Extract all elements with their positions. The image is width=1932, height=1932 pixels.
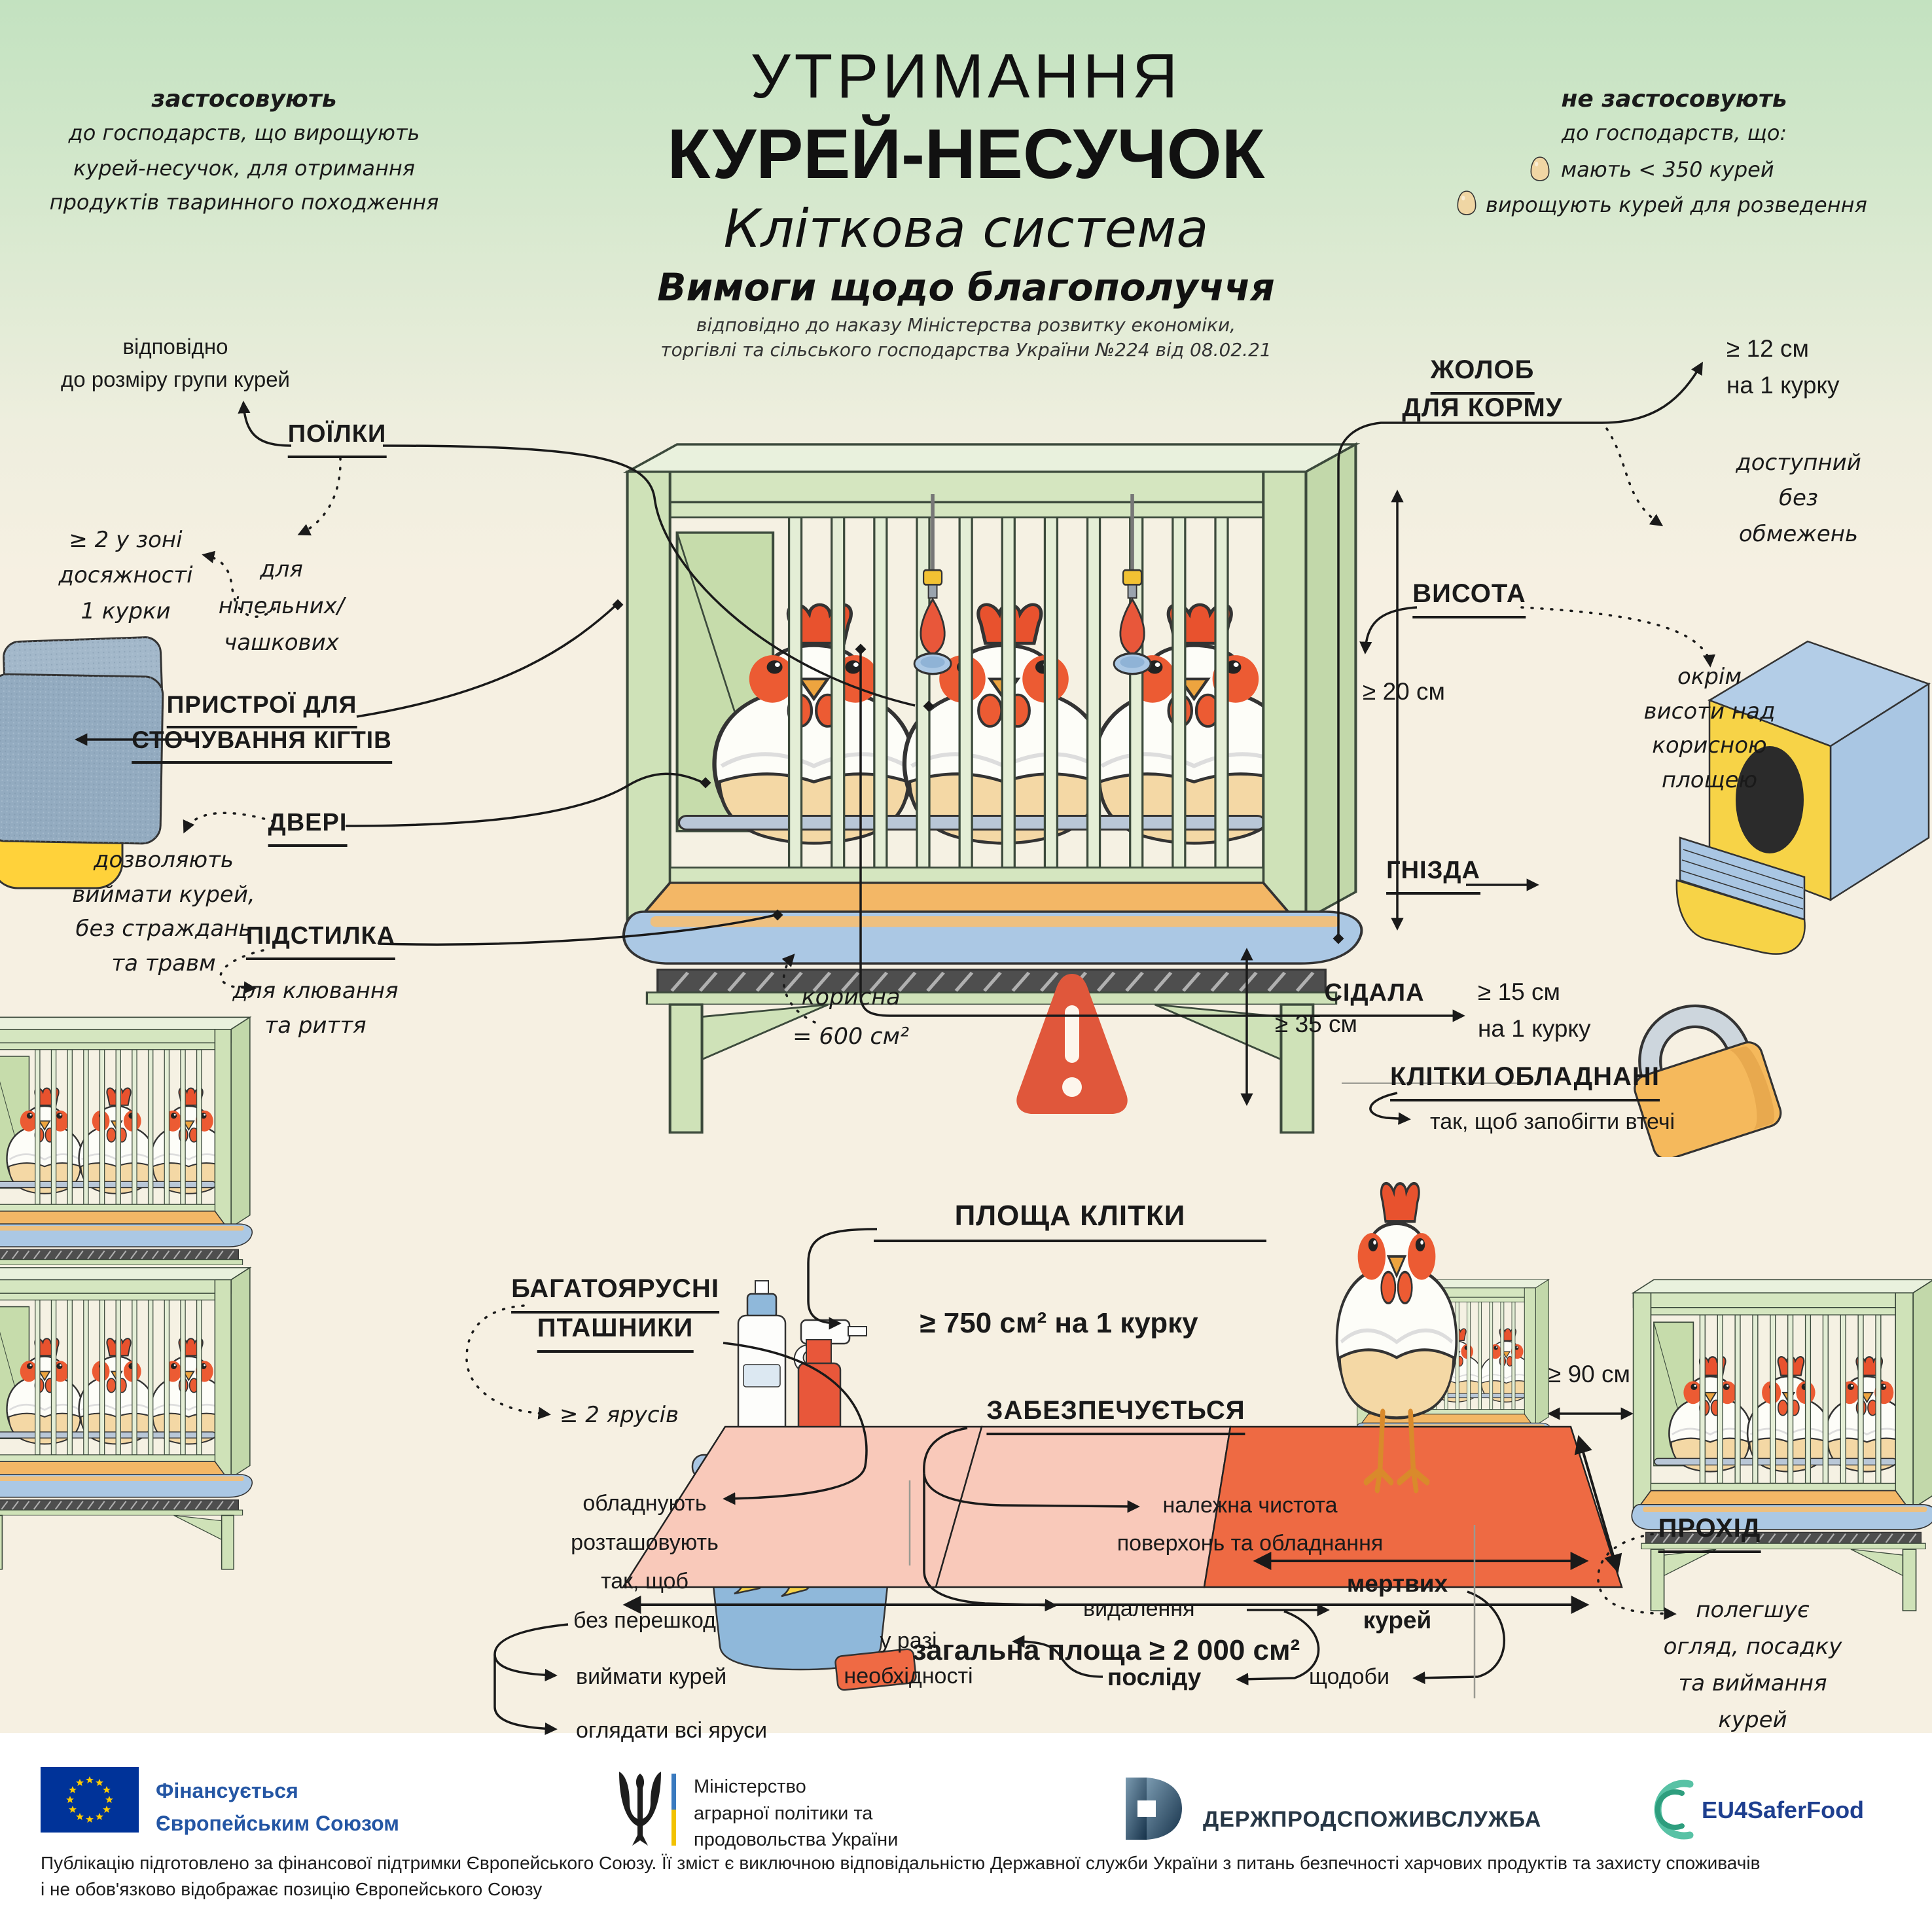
multi-tier-header-2: ПТАШНИКИ [537, 1310, 694, 1353]
not-apply-item-1: мають < 350 курей [1561, 156, 1774, 184]
cage-area-header: ПЛОЩА КЛІТКИ [874, 1196, 1266, 1242]
poster-subtitle2: Вимоги щодо благополуччя [657, 262, 1274, 313]
warning-icon [1010, 967, 1134, 1118]
not-apply-title: не застосовують [1562, 84, 1787, 116]
ensured-droppings: посліду [1107, 1661, 1201, 1694]
apply-title: застосовують [151, 84, 336, 116]
doors-header: ДВЕРІ [268, 806, 348, 847]
mini-cage-icon [1630, 1275, 1932, 1613]
ensured-clean: належна чистота поверхонь та обладнання [1117, 1487, 1384, 1563]
multi-tier-header-1: БАГАТОЯРУСНІ [511, 1271, 719, 1314]
multi-tier-cage-icon [0, 1013, 253, 1572]
not-apply-subtitle: до господарств, що: [1562, 119, 1787, 147]
multi-tier-bullet-1: виймати курей [576, 1662, 726, 1692]
aisle-note: полегшує огляд, посадку та виймання куре… [1663, 1592, 1842, 1738]
apply-line2: курей-несучок, для отримання [73, 154, 415, 183]
drinkers-type-note: для ніпельних/ чашкових [219, 551, 345, 661]
drinker-icon [906, 494, 960, 713]
egg-icon [1456, 190, 1477, 216]
feed-trough-header-1: ЖОЛОБ [1431, 352, 1535, 395]
litter-header: ПІДСТИЛКА [246, 920, 395, 960]
height-note: окрім висоти над корисною площею [1644, 660, 1776, 798]
apply-line1: до господарств, що вирощують [69, 119, 420, 147]
multi-tier-bullet-2: оглядати всі яруси [576, 1716, 767, 1746]
eu4-label: EU4SaferFood [1702, 1797, 1864, 1823]
ensured-daily: щодоби [1309, 1662, 1389, 1692]
disclaimer-line2: і не обов'язково відображає позицію Євро… [41, 1877, 1899, 1902]
drinker-icon [1106, 494, 1160, 713]
order-note: відповідно до наказу Міністерства розвит… [660, 313, 1271, 363]
perches-value: ≥ 15 см на 1 курку [1478, 974, 1591, 1046]
cage-area-useful: корисна = 600 см² [793, 978, 909, 1056]
claw-devices-header-1: ПРИСТРОЇ ДЛЯ [167, 689, 357, 728]
main-cage-icon [618, 435, 1365, 1136]
eu-funding-label: Фінансується Європейським Союзом [156, 1775, 399, 1840]
disclaimer-line1: Публікацію підготовлено за фінансової пі… [41, 1851, 1899, 1876]
not-apply-item-2: вирощують курей для розведення [1486, 191, 1867, 219]
litter-note: для клювання та риття [232, 974, 398, 1043]
nests-header: ГНІЗДА [1386, 854, 1480, 895]
ensured-as-needed: у разі необхідності [844, 1623, 973, 1694]
drinkers-header: ПОЇЛКИ [288, 418, 387, 458]
equipped-header: КЛІТКИ ОБЛАДНАНІ [1390, 1059, 1660, 1101]
infographic-poster: застосовують до господарств, що вирощуют… [0, 0, 1932, 1932]
standing-hen-icon [1327, 1175, 1466, 1515]
eu-flag-icon [41, 1767, 139, 1833]
eu4saferfood-icon: EU4SaferFood [1641, 1774, 1877, 1846]
service-logo-icon [1113, 1771, 1188, 1846]
multi-tier-tiers: ≥ 2 ярусів [560, 1401, 679, 1431]
equipped-note: так, щоб запобігти втечі [1430, 1107, 1675, 1137]
height-value: ≥ 20 см [1363, 675, 1445, 708]
ensured-removal: видалення [1083, 1594, 1195, 1624]
poster-title-line2: КУРЕЙ-НЕСУЧОК [667, 106, 1264, 202]
ensured-dead: мертвих курей [1347, 1565, 1448, 1638]
aisle-value: ≥ 90 см [1548, 1358, 1630, 1391]
perches-header: СІДАЛА [1324, 976, 1424, 1010]
height-header: ВИСОТА [1412, 576, 1526, 618]
multi-tier-body: обладнують розташовують так, щоб без пер… [571, 1484, 719, 1640]
apply-line3: продуктів тваринного походження [50, 188, 439, 217]
doors-note: дозволяють виймати курей, без страждань … [72, 843, 255, 981]
claw-devices-header-2: СТОЧУВАННЯ КІГТІВ [132, 724, 392, 764]
cage-area-gap: ≥ 35 см [1275, 1008, 1357, 1041]
aisle-header: ПРОХІД [1658, 1511, 1761, 1553]
feed-trough-value: ≥ 12 см на 1 курку [1726, 331, 1840, 403]
feed-trough-header-2: ДЛЯ КОРМУ [1402, 390, 1562, 425]
ministry-label: Міністерство аграрної політики та продов… [694, 1774, 898, 1853]
egg-icon [1529, 156, 1550, 182]
service-label: ДЕРЖПРОДСПОЖИВСЛУЖБА [1203, 1805, 1541, 1835]
ensured-header: ЗАБЕЗПЕЧУЄТЬСЯ [986, 1393, 1245, 1435]
cage-area-per-hen: ≥ 750 см² на 1 курку [920, 1304, 1198, 1342]
feed-trough-note: доступний без обмежень [1736, 445, 1861, 552]
drinkers-group-note: відповідно до розміру групи курей [61, 331, 290, 395]
poster-subtitle: Кліткова система [724, 194, 1209, 264]
drinkers-count-note: ≥ 2 у зоні досяжності 1 курки [58, 522, 192, 629]
trident-icon [614, 1768, 679, 1850]
